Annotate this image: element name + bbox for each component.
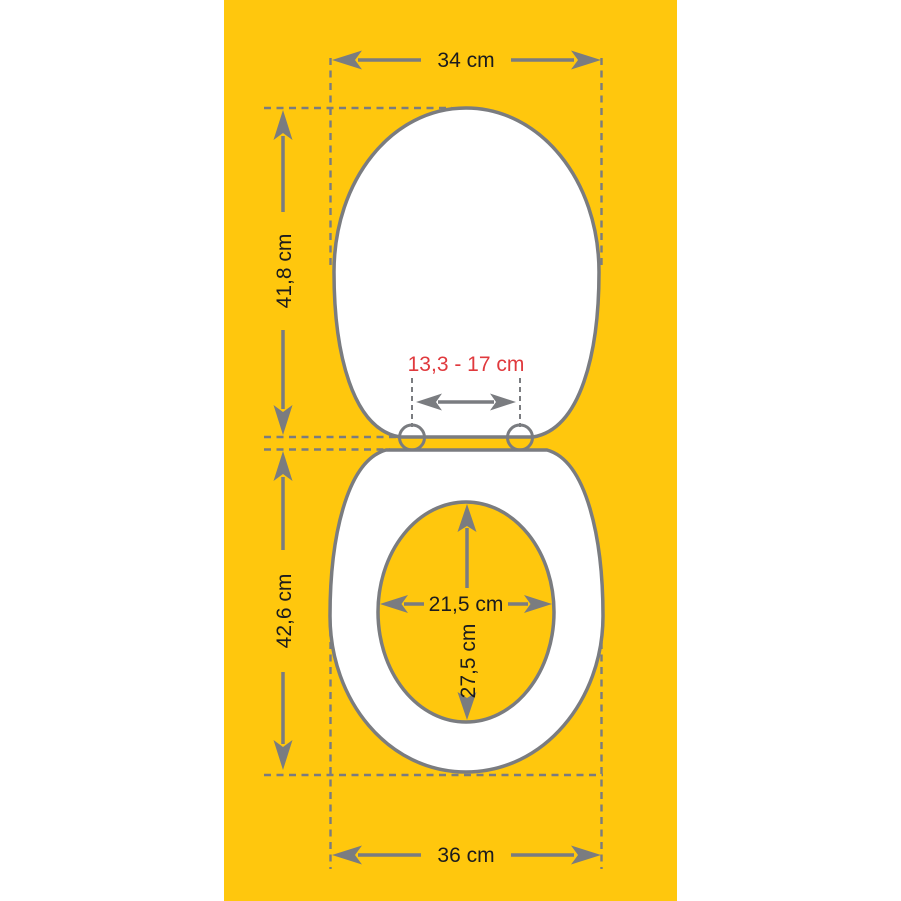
product-dimension-image: 13,3 - 17 cm 34 cm 41,8 cm 42,6 cm 21,5 …: [0, 0, 901, 901]
toilet-seat-dimension-diagram: 13,3 - 17 cm 34 cm 41,8 cm 42,6 cm 21,5 …: [0, 0, 901, 901]
seat-length-label: 42,6 cm: [273, 574, 296, 649]
lid-width-label: 34 cm: [437, 49, 494, 72]
hole-width-label: 21,5 cm: [429, 593, 504, 616]
hole-depth-label: 27,5 cm: [457, 624, 480, 699]
seat-width-label: 36 cm: [437, 844, 494, 867]
toilet-lid-shape: [334, 108, 599, 437]
lid-height-label: 41,8 cm: [273, 234, 296, 309]
hinge-spacing-label: 13,3 - 17 cm: [408, 353, 525, 376]
